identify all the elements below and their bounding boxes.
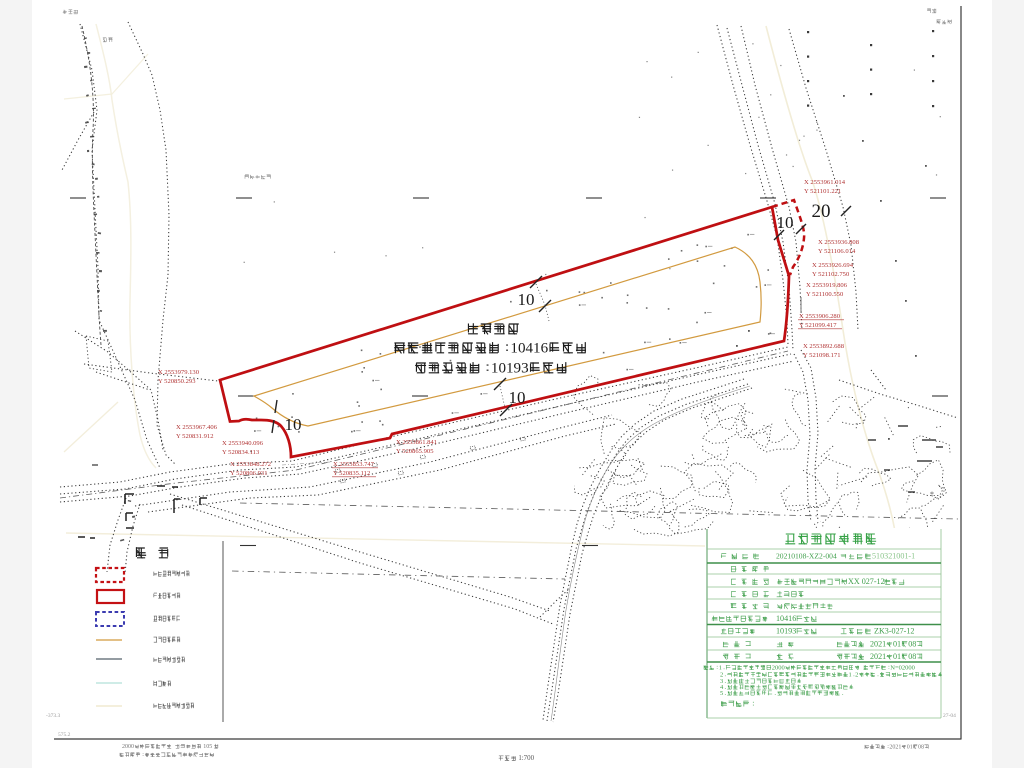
svg-text:Y 521099.417: Y 521099.417	[799, 322, 837, 329]
svg-text:10: 10	[509, 388, 526, 407]
svg-text:575.2: 575.2	[58, 732, 71, 738]
svg-text:01: 01	[893, 652, 901, 661]
svg-text:X 2553906.280: X 2553906.280	[799, 313, 841, 320]
svg-text:Y 521098.171: Y 521098.171	[803, 352, 841, 359]
svg-text:X 2553936.808: X 2553936.808	[818, 239, 860, 246]
svg-text:N=02000: N=02000	[890, 664, 915, 671]
svg-text:X 2553861.841: X 2553861.841	[396, 439, 437, 446]
svg-text:XX 027-12: XX 027-12	[848, 577, 885, 586]
svg-text:Y 521100.550: Y 521100.550	[806, 291, 844, 298]
svg-text:Y 520835.112: Y 520835.112	[333, 470, 370, 477]
svg-text:01: 01	[907, 745, 913, 751]
svg-text:105: 105	[202, 744, 213, 750]
svg-text:Y 520834.113: Y 520834.113	[222, 449, 260, 456]
svg-text:-373.3: -373.3	[46, 713, 60, 719]
svg-text:10: 10	[285, 415, 302, 434]
svg-text:1: 1	[719, 664, 722, 671]
svg-text:10416: 10416	[510, 340, 548, 356]
svg-text:08: 08	[908, 652, 916, 661]
svg-text:Y 521102.750: Y 521102.750	[812, 271, 850, 278]
svg-text:01: 01	[893, 640, 901, 649]
svg-text:1:700: 1:700	[517, 755, 535, 762]
svg-text:5: 5	[720, 690, 723, 697]
svg-text:X 2553967.406: X 2553967.406	[176, 424, 218, 431]
svg-text:X 2553979.130: X 2553979.130	[158, 369, 200, 376]
svg-text:Y 520806.931: Y 520806.931	[230, 470, 268, 477]
svg-text:Y 521106.014: Y 521106.014	[818, 248, 856, 255]
svg-text:X 2553940.096: X 2553940.096	[222, 440, 264, 447]
svg-text:*: *	[930, 490, 934, 499]
svg-text:X 2553892.688: X 2553892.688	[803, 343, 845, 350]
svg-text:10: 10	[518, 290, 535, 309]
svg-text:Y 520850.293: Y 520850.293	[158, 378, 196, 385]
svg-text:08: 08	[918, 745, 924, 751]
svg-text:08: 08	[908, 640, 916, 649]
svg-text:X 2553848.272: X 2553848.272	[230, 461, 271, 468]
svg-text:2021: 2021	[870, 640, 886, 649]
svg-text:510321001-1: 510321001-1	[872, 552, 915, 561]
svg-text:ZK3-027-12: ZK3-027-12	[874, 627, 914, 636]
svg-text:2000: 2000	[122, 744, 134, 750]
svg-text:10193: 10193	[491, 360, 529, 376]
svg-text:10193: 10193	[776, 627, 796, 636]
svg-text:10416: 10416	[776, 614, 796, 623]
svg-text:X 2553919.806: X 2553919.806	[806, 282, 848, 289]
svg-text:20210108-XZ2-004: 20210108-XZ2-004	[776, 552, 837, 561]
svg-text:2021: 2021	[870, 652, 886, 661]
svg-text:2021: 2021	[889, 745, 901, 751]
svg-text:10: 10	[777, 213, 794, 232]
svg-text:Y 521101.221: Y 521101.221	[804, 188, 841, 195]
svg-text:Y 520865.905: Y 520865.905	[396, 448, 434, 455]
svg-text:1: 1	[849, 671, 852, 678]
svg-text:X 2553853.747: X 2553853.747	[333, 461, 375, 468]
svg-text:2000: 2000	[772, 664, 785, 671]
svg-text:X 2553961.014: X 2553961.014	[804, 179, 846, 186]
svg-text:X 2553926.694: X 2553926.694	[812, 262, 854, 269]
svg-text:Y 520831.912: Y 520831.912	[176, 433, 214, 440]
svg-text:2: 2	[855, 671, 858, 678]
svg-text:20: 20	[812, 201, 831, 222]
